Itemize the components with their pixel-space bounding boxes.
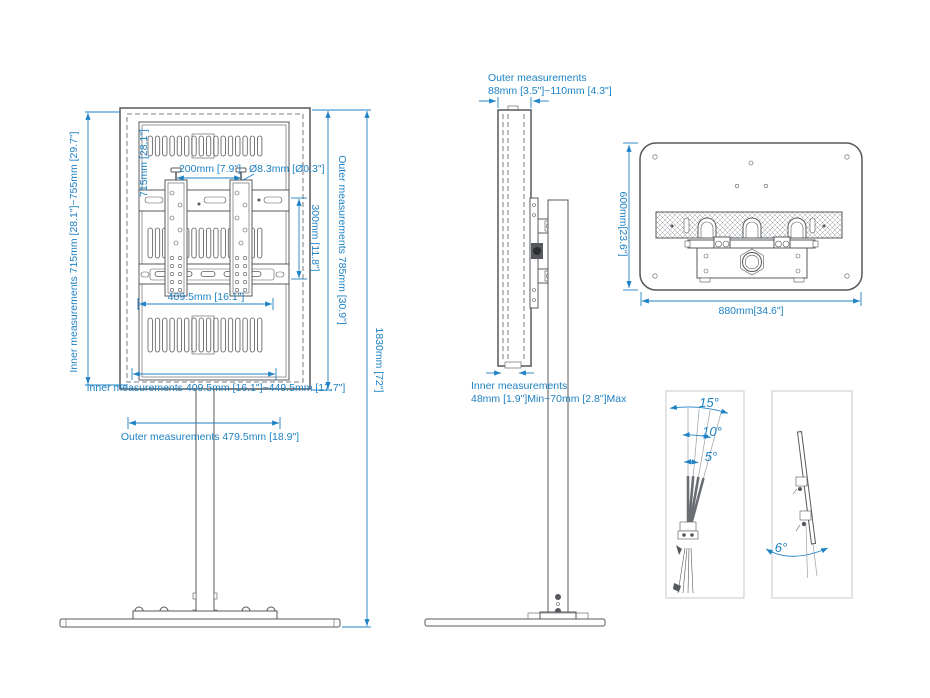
tilt-diagram-single: 6° (766, 391, 852, 598)
dim-inner-width-label: Inner measurements 409.5mm [16.1"]~449.5… (87, 382, 346, 394)
dim-side-outer-range: 88mm [3.5"]~110mm [4.3"] (488, 85, 612, 97)
dim-outer-width-label: Outer measurements 479.5mm [18.9"] (121, 431, 299, 443)
back-mount-assembly (685, 237, 818, 282)
wall-plate-bar (656, 212, 842, 238)
tilt-angle-10-label: 10° (702, 424, 722, 439)
tilt-angle-6-label: 6° (775, 540, 787, 555)
tilt-single-box (772, 391, 852, 598)
mount-bracket-right (230, 168, 252, 296)
side-view: Outer measurements 88mm [3.5"]~110mm [4.… (425, 72, 627, 626)
stand-pole-side (548, 200, 568, 619)
upper-mount-rail (139, 190, 289, 211)
dim-total-height-label: 1830mm [72"] (373, 327, 385, 392)
tilt-fan-box (666, 391, 744, 598)
technical-drawing-page: Inner measurements 715mm [28.1"]~755mm [… (0, 0, 930, 698)
dim-bracket-height-label: 715mm [28.1"] (138, 129, 150, 197)
dim-outer-height-label: Outer measurements 785mm [30.9"] (336, 155, 348, 325)
tilt-diagram-fan: 15° 10° 5° (666, 391, 744, 598)
dim-side-inner-range: 48mm [1.9"]Min~70mm [2.8"]Max (471, 393, 627, 405)
stand-base-side (425, 612, 605, 626)
back-view: 600mm[23.6"] 880mm[34.6"] (617, 143, 862, 317)
dim-hole-diameter-label: Ø8.3mm [Ø0.3"] (249, 163, 325, 175)
tilt-angle-5-label: 5° (705, 449, 717, 464)
dim-side-outer-title: Outer measurements (488, 72, 587, 84)
dim-side-inner-title: Inner measurements (471, 380, 567, 392)
dim-hole-spacing-label: 200mm [7.9"] (179, 163, 241, 175)
lower-mount-rail (139, 264, 289, 284)
dim-back-height-label: 600mm[23.6"] (617, 191, 629, 256)
dim-bracket-width-label: 409.5mm [16.1"] (168, 291, 245, 303)
dim-back-width-label: 880mm[34.6"] (718, 305, 783, 317)
tilt-angle-15-label: 15° (699, 395, 719, 410)
dim-inner-height-label: Inner measurements 715mm [28.1"]~755mm [… (68, 131, 80, 372)
mount-bracket-left (165, 168, 187, 296)
front-view: Inner measurements 715mm [28.1"]~755mm [… (60, 108, 385, 627)
dim-vesa-height-label: 300mm [11.8"] (309, 204, 321, 271)
